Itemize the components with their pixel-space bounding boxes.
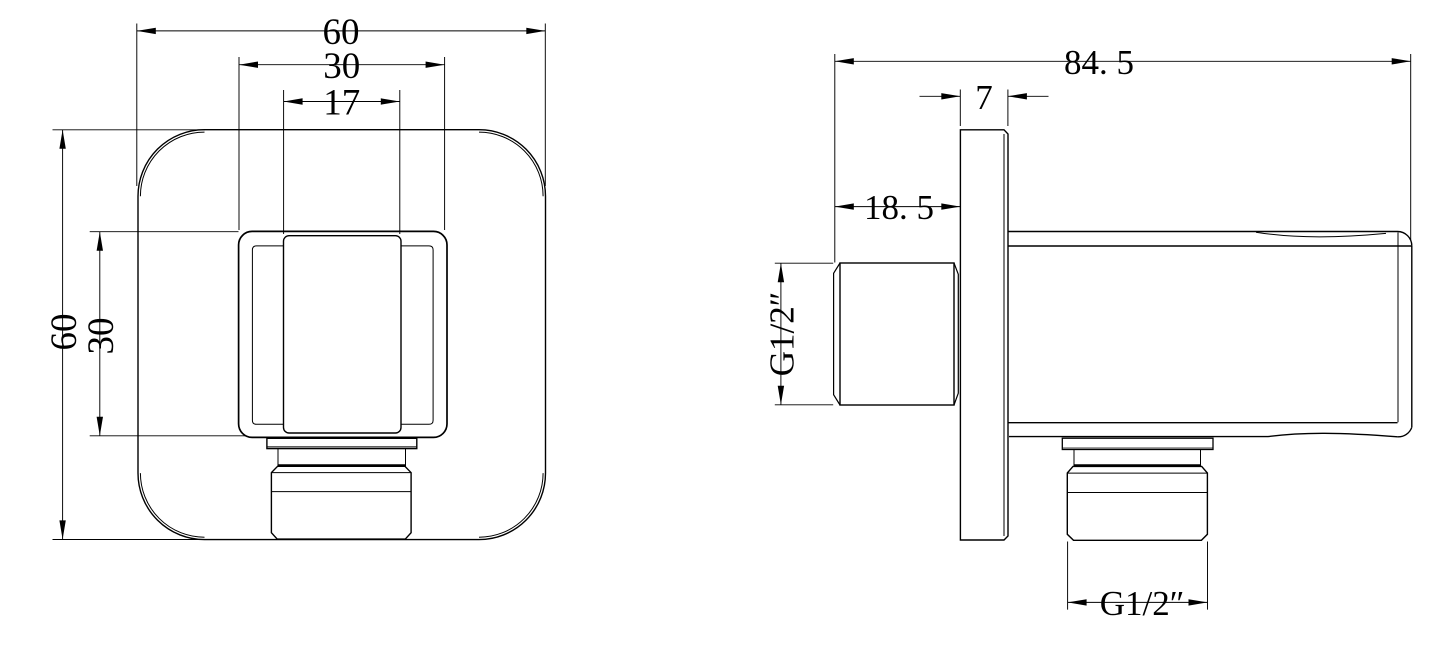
svg-text:60: 60 — [44, 314, 85, 351]
svg-text:84. 5: 84. 5 — [1064, 43, 1134, 82]
svg-text:30: 30 — [323, 46, 360, 87]
svg-text:30: 30 — [81, 318, 122, 355]
svg-text:G1/2″: G1/2″ — [762, 292, 801, 377]
svg-text:7: 7 — [975, 78, 993, 117]
svg-text:17: 17 — [323, 83, 360, 124]
svg-text:18. 5: 18. 5 — [864, 188, 934, 227]
svg-text:G1/2″: G1/2″ — [1100, 584, 1185, 623]
